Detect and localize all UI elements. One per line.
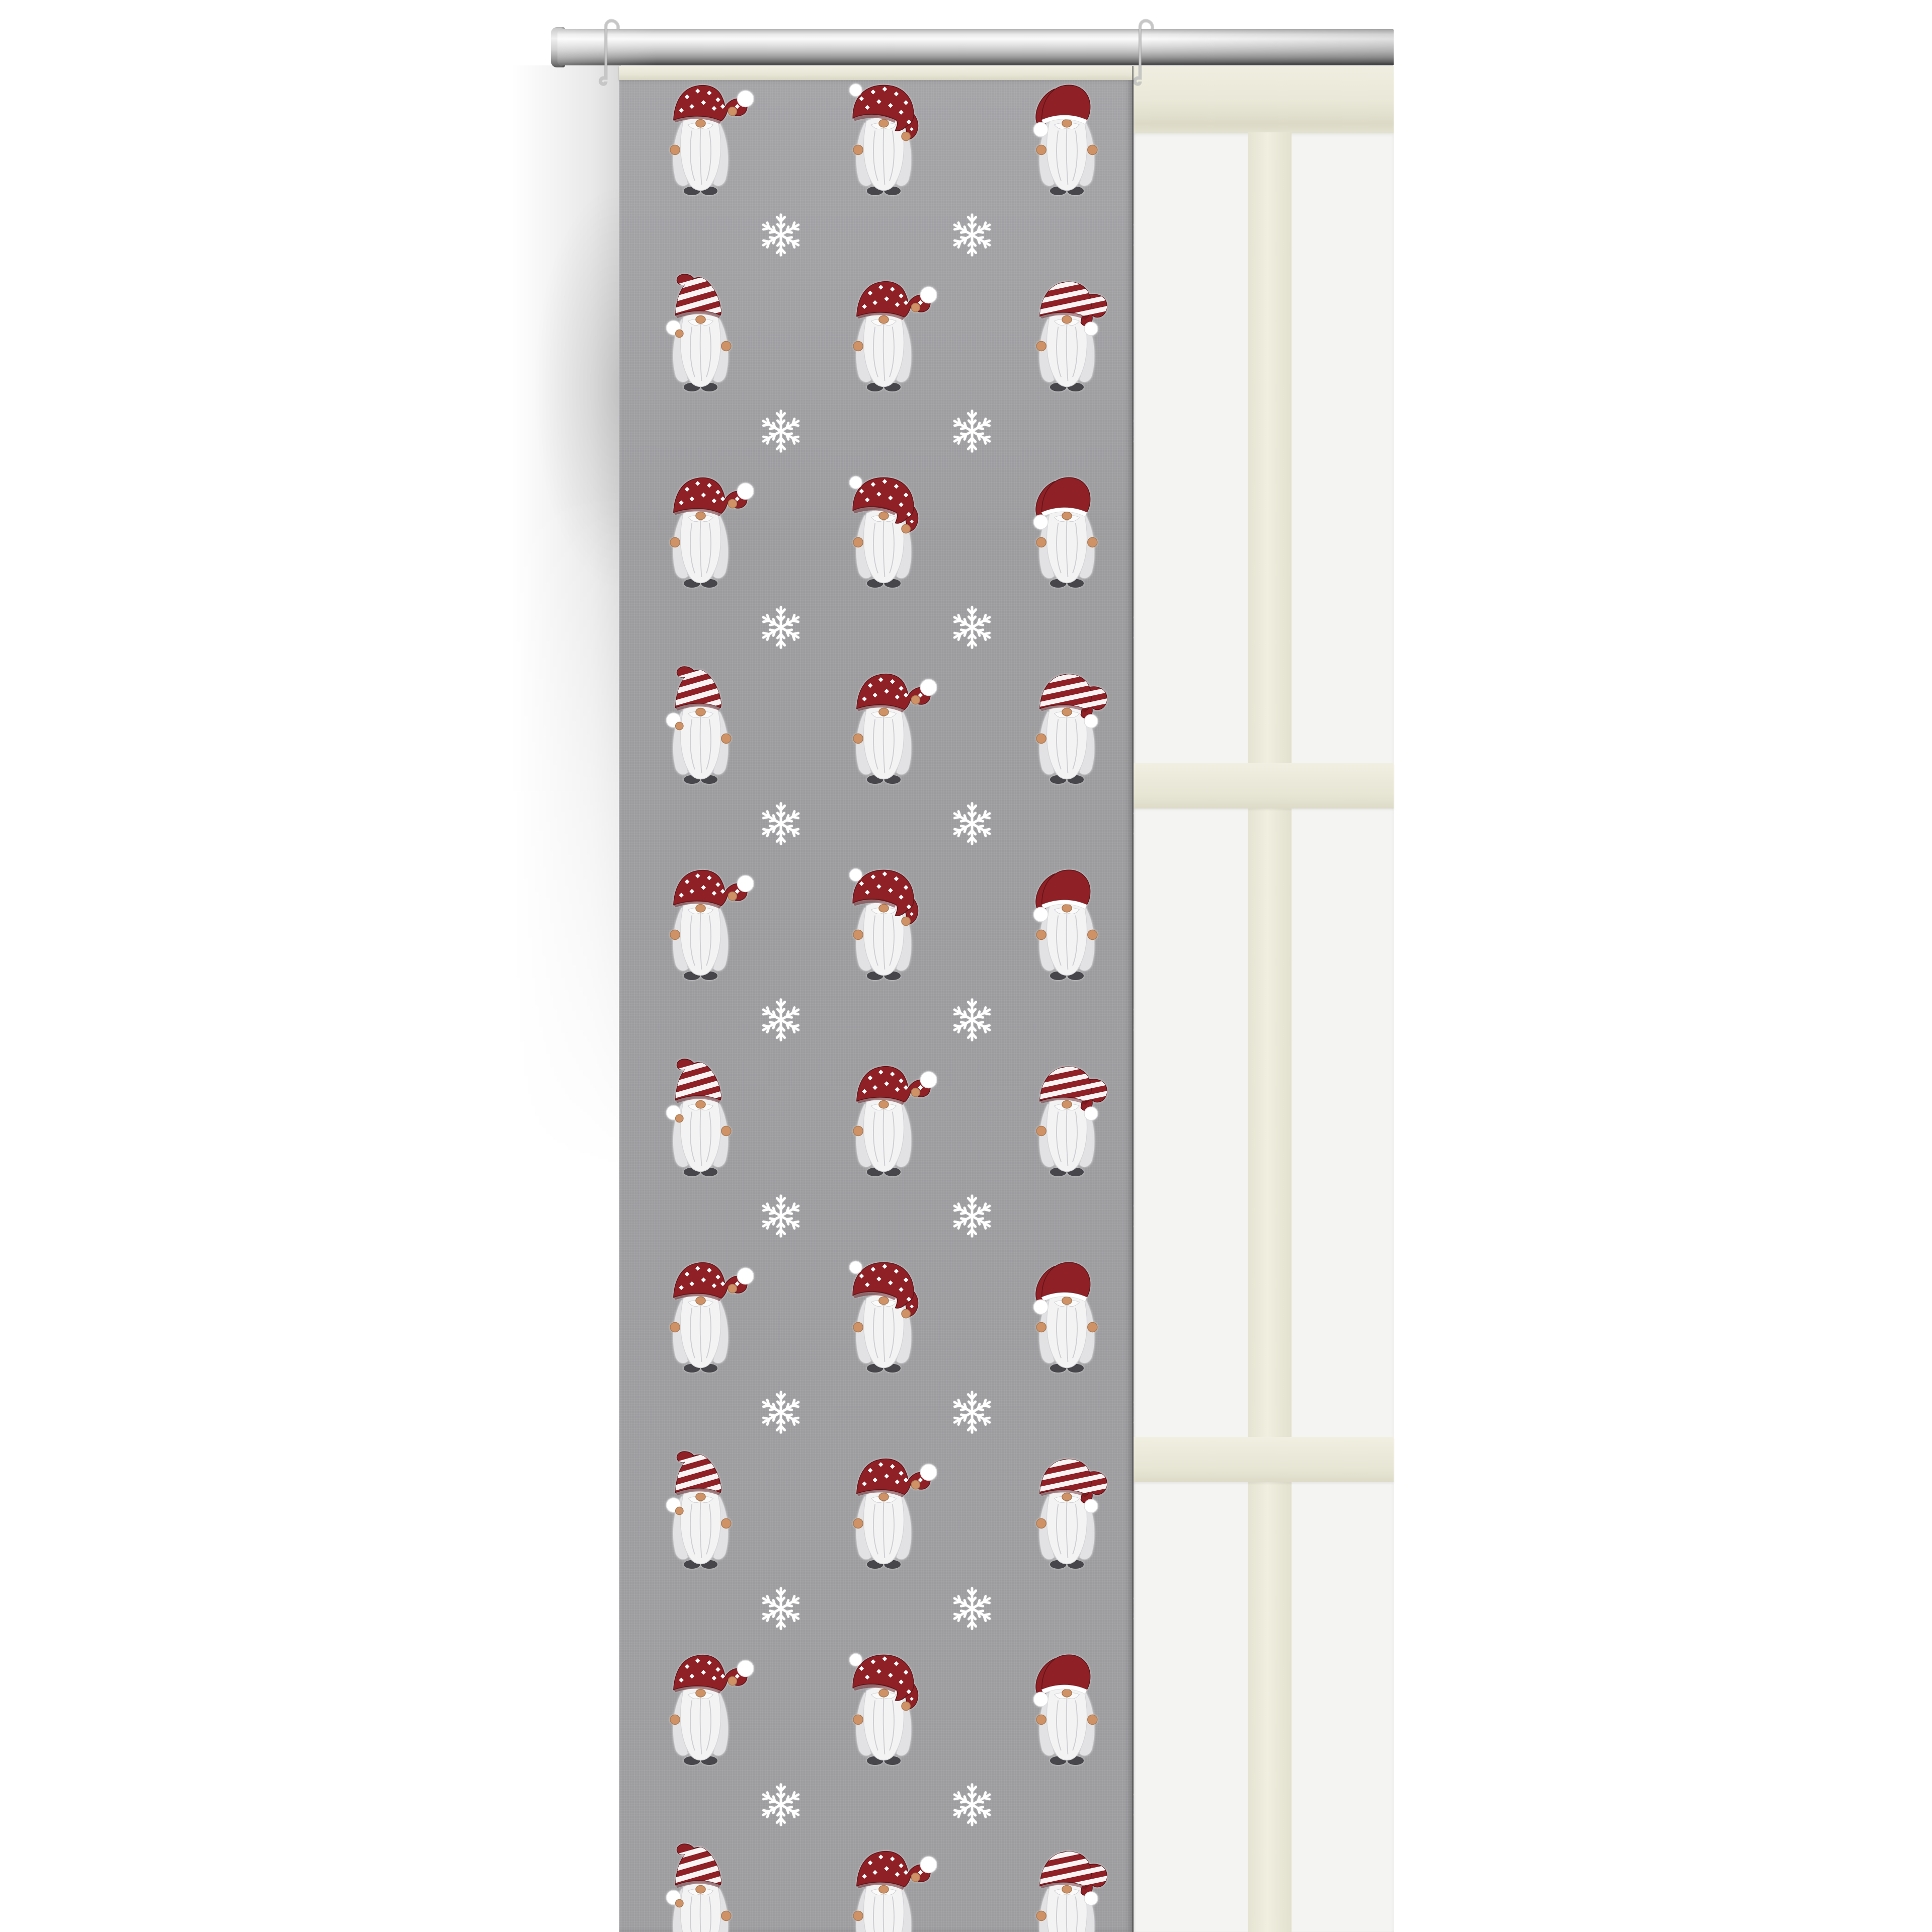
gnome-figure-dotted-bent-right bbox=[648, 861, 754, 982]
curtain-wall-shadow bbox=[511, 65, 621, 1323]
gnome-figure-striped-bent bbox=[1014, 273, 1120, 393]
gnome-figure-dotted-drape bbox=[831, 1646, 937, 1767]
gnome-figure-striped-bent bbox=[1014, 1058, 1120, 1178]
curtain-rod bbox=[557, 29, 1394, 65]
snowflake-icon bbox=[948, 799, 996, 848]
window-frame-horizontal-mullion bbox=[1134, 763, 1394, 809]
gnome-figure-dotted-drape bbox=[831, 469, 937, 590]
gnome-figure-dotted-bent-right bbox=[831, 273, 937, 393]
product-photo bbox=[0, 0, 1932, 1932]
gnome-figure-striped-bent bbox=[1014, 1450, 1120, 1571]
snowflake-icon bbox=[948, 211, 996, 259]
snowflake-icon bbox=[757, 603, 805, 652]
gnome-figure-dotted-bent-right bbox=[831, 1450, 937, 1571]
gnome-figure-dotted-bent-right bbox=[831, 1842, 937, 1932]
gnome-figure-dotted-drape bbox=[831, 861, 937, 982]
gnome-figure-dotted-bent-right bbox=[648, 80, 754, 197]
curtain-right-edge bbox=[1132, 66, 1134, 1932]
gnome-figure-striped-tall bbox=[648, 273, 754, 393]
snowflake-icon bbox=[757, 407, 805, 455]
snowflake-icon bbox=[948, 1192, 996, 1240]
snowflake-icon bbox=[757, 799, 805, 848]
gnome-figure-striped-bent bbox=[1014, 1842, 1120, 1932]
window-frame-horizontal-mullion bbox=[1134, 1437, 1394, 1482]
curtain-hook-icon bbox=[1129, 17, 1164, 90]
gnome-figure-plain-droop bbox=[1014, 1646, 1120, 1767]
gnome-figure-dotted-bent-right bbox=[648, 1254, 754, 1375]
snowflake-icon bbox=[948, 1584, 996, 1633]
snowflake-icon bbox=[757, 1388, 805, 1436]
curtain-header-rail bbox=[619, 66, 1134, 80]
gnome-figure-dotted-drape bbox=[831, 80, 937, 197]
gnome-figure-plain-droop bbox=[1014, 469, 1120, 590]
window-frame-vertical-mullion bbox=[1248, 132, 1292, 1932]
gnome-figure-striped-tall bbox=[648, 1058, 754, 1178]
snowflake-icon bbox=[948, 1781, 996, 1829]
gnome-figure-dotted-bent-right bbox=[648, 469, 754, 590]
snowflake-icon bbox=[757, 211, 805, 259]
window-frame-top-rail bbox=[1134, 66, 1394, 133]
gnome-figure-striped-tall bbox=[648, 665, 754, 786]
gnome-figure-plain-droop bbox=[1014, 80, 1120, 197]
snowflake-icon bbox=[948, 996, 996, 1044]
gnome-figure-striped-tall bbox=[648, 1450, 754, 1571]
gnome-figure-striped-tall bbox=[648, 1842, 754, 1932]
snowflake-icon bbox=[757, 996, 805, 1044]
gnome-figure-dotted-bent-right bbox=[831, 665, 937, 786]
snowflake-icon bbox=[757, 1781, 805, 1829]
snowflake-icon bbox=[948, 603, 996, 652]
gnome-figure-dotted-bent-right bbox=[648, 1646, 754, 1767]
snowflake-icon bbox=[948, 1388, 996, 1436]
snowflake-icon bbox=[948, 407, 996, 455]
gnome-figure-plain-droop bbox=[1014, 861, 1120, 982]
snowflake-icon bbox=[757, 1584, 805, 1633]
gnome-figure-striped-bent bbox=[1014, 665, 1120, 786]
gnome-figure-dotted-drape bbox=[831, 1254, 937, 1375]
gnome-figure-plain-droop bbox=[1014, 1254, 1120, 1375]
curtain-fabric bbox=[619, 80, 1134, 1932]
snowflake-icon bbox=[757, 1192, 805, 1240]
panel-curtain bbox=[619, 66, 1134, 1932]
gnome-figure-dotted-bent-right bbox=[831, 1058, 937, 1178]
